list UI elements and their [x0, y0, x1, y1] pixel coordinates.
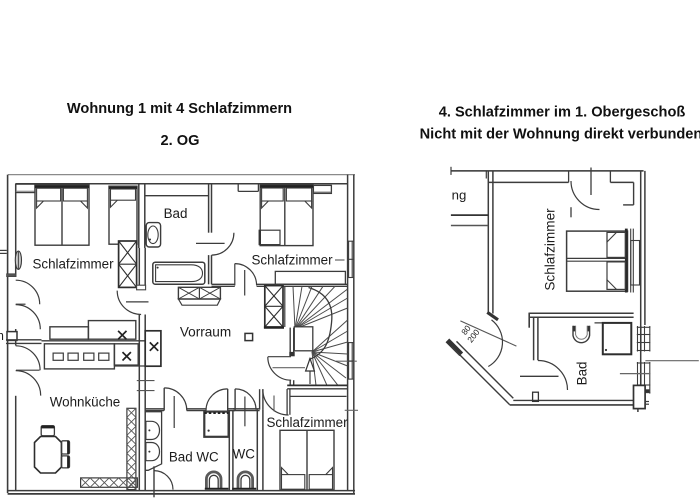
- svg-text:m: m: [0, 329, 4, 343]
- svg-text:Bad: Bad: [164, 206, 188, 221]
- svg-text:Bad WC: Bad WC: [169, 450, 219, 465]
- svg-text:4. Schlafzimmer im 1. Obergesc: 4. Schlafzimmer im 1. Obergeschoß: [439, 105, 686, 121]
- svg-text:Wohnung 1 mit 4 Schlafzimmern: Wohnung 1 mit 4 Schlafzimmern: [67, 101, 292, 117]
- svg-text:2. OG: 2. OG: [161, 133, 200, 149]
- svg-text:WC: WC: [233, 446, 256, 461]
- svg-text:Schlafzimmer: Schlafzimmer: [543, 208, 558, 291]
- svg-text:Vorraum: Vorraum: [180, 325, 231, 340]
- svg-text:Nicht mit der Wohnung direkt v: Nicht mit der Wohnung direkt verbunden: [420, 127, 700, 143]
- svg-text:Wohnküche: Wohnküche: [50, 395, 120, 410]
- svg-text:Schlafzimmer: Schlafzimmer: [266, 415, 348, 430]
- svg-text:Schlafzimmer: Schlafzimmer: [251, 253, 333, 268]
- svg-text:Schlafzimmer: Schlafzimmer: [32, 257, 114, 272]
- svg-text:ng: ng: [452, 188, 467, 203]
- svg-text:Bad: Bad: [575, 361, 590, 385]
